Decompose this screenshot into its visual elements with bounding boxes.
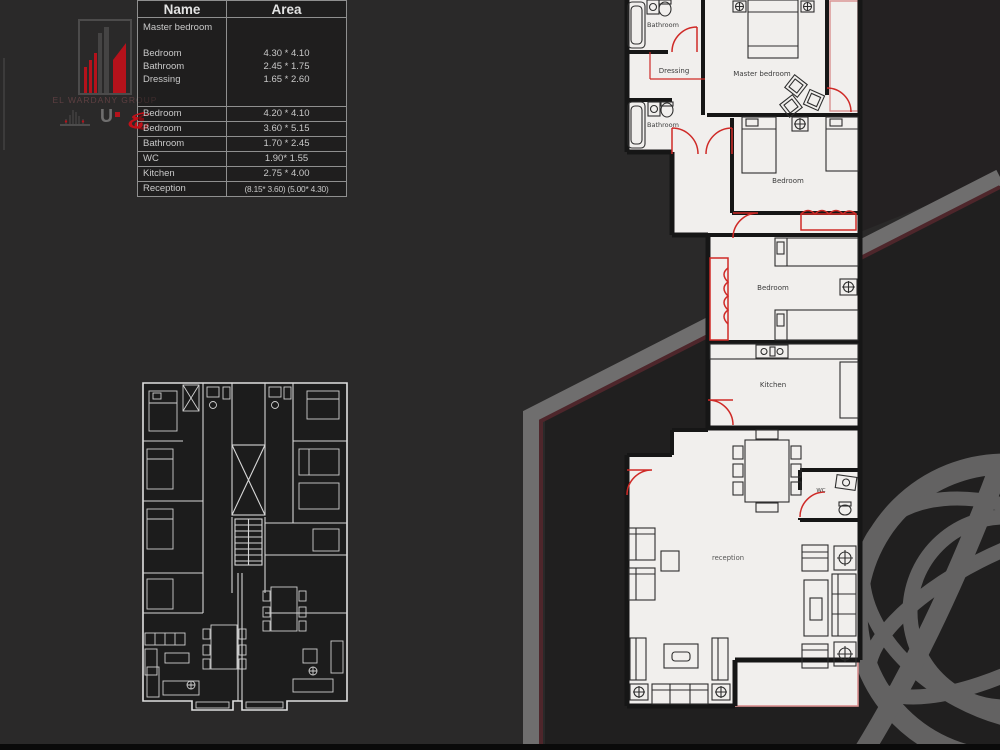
label-bedroom-low: Bedroom: [757, 284, 789, 292]
group-area: 2.45 * 1.75: [227, 61, 346, 73]
u-mark: U: [100, 106, 113, 127]
edge-tick: [3, 58, 5, 150]
building-bars-icon: [78, 19, 132, 95]
presentation-canvas: Bathroom Dressing Master bedroom Bathroo…: [0, 0, 1000, 750]
label-kitchen: Kitchen: [760, 381, 786, 389]
header-name: Name: [138, 1, 227, 17]
red-dot-icon: [115, 112, 120, 117]
table-row: Kitchen 2.75 * 4.00: [138, 166, 346, 181]
area-table: Name Area Master bedroom Bedroom Bathroo…: [137, 0, 347, 197]
label-reception: reception: [712, 554, 744, 562]
building-small-icon: [58, 108, 92, 132]
bottom-strip: [0, 744, 1000, 750]
group-area: 4.30 * 4.10: [227, 48, 346, 60]
label-bathroom-low: Bathroom: [647, 121, 679, 129]
large-floorplan: Bathroom Dressing Master bedroom Bathroo…: [627, 0, 860, 706]
label-bathroom-top: Bathroom: [647, 21, 679, 29]
group-name: Dressing: [143, 74, 181, 86]
table-row: Bedroom 3.60 * 5.15: [138, 121, 346, 136]
group-area: 1.65 * 2.60: [227, 74, 346, 86]
group-name: Bedroom: [143, 48, 182, 60]
table-header: Name Area: [138, 1, 346, 17]
group-name: Master bedroom: [143, 22, 212, 34]
arabic-glyph-marker-icon: [126, 111, 146, 133]
table-row: Bathroom 1.70 * 2.45: [138, 136, 346, 151]
header-area: Area: [227, 1, 346, 17]
table-row: Bedroom 4.20 * 4.10: [138, 106, 346, 121]
table-group-row: Master bedroom Bedroom Bathroom Dressing…: [138, 17, 346, 106]
small-floorplan: [143, 383, 347, 710]
label-wc: WC: [816, 488, 825, 494]
table-row: Reception (8.15* 3.60) (5.00* 4.30): [138, 181, 346, 196]
group-name: Bathroom: [143, 61, 184, 73]
table-row: WC 1.90* 1.55: [138, 151, 346, 166]
label-master: Master bedroom: [733, 70, 791, 78]
label-dressing: Dressing: [659, 67, 690, 75]
label-bedroom-up: Bedroom: [772, 177, 804, 185]
